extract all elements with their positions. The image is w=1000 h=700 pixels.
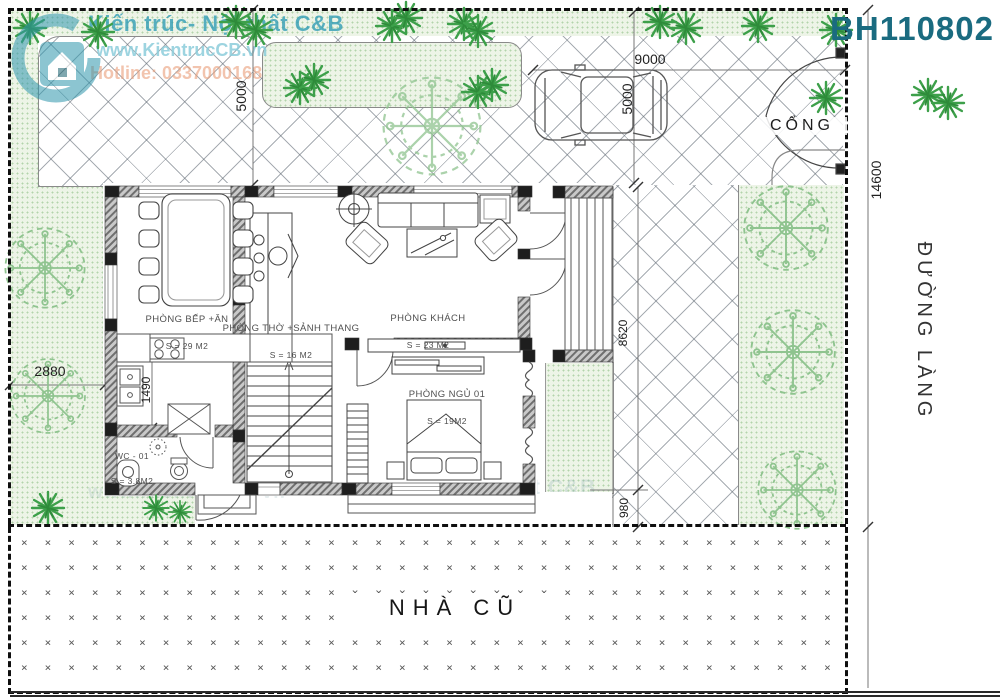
dim-side-yard: 8620 <box>616 304 630 362</box>
floor-plan-page: Kiến trúc- Nội thất C&B www.KientrucCB.v… <box>0 0 1000 700</box>
dim-kitchen-counter: 1490 <box>139 361 153 419</box>
bottom-line-1 <box>10 691 1000 693</box>
room-label-wc: WC - 01 S = 3.8M2 <box>92 438 172 500</box>
room-name: WC - 01 <box>92 450 172 462</box>
dim-rear-gap: 980 <box>617 482 631 534</box>
room-area: S = 3.8M2 <box>92 475 172 487</box>
plan-code: BH110802 <box>830 10 994 48</box>
dim-parking-width: 9000 <box>618 51 682 67</box>
road-label: ĐƯỜNG LÀNG <box>909 221 935 441</box>
room-area: S = 19M2 <box>367 415 527 427</box>
room-label-bedroom: PHÒNG NGỦ 01 S = 19M2 <box>367 374 527 441</box>
room-area: S = 23 M2 <box>348 339 508 351</box>
room-name: PHÒNG NGỦ 01 <box>367 388 527 402</box>
dim-parking-depth: 5000 <box>619 69 635 129</box>
dim-lot-depth: 14600 <box>868 149 884 211</box>
gate-label: CỔNG <box>757 117 847 135</box>
bottom-line-2 <box>10 695 1000 697</box>
old-house-label: NHÀ CŨ <box>345 593 565 623</box>
room-label-living: PHÒNG KHÁCH S = 23 M2 <box>348 298 508 365</box>
dim-left-setback: 2880 <box>18 363 82 379</box>
old-house-boundary <box>8 524 846 527</box>
dim-left-yard-depth: 5000 <box>233 66 249 126</box>
room-name: PHÒNG KHÁCH <box>348 312 508 326</box>
